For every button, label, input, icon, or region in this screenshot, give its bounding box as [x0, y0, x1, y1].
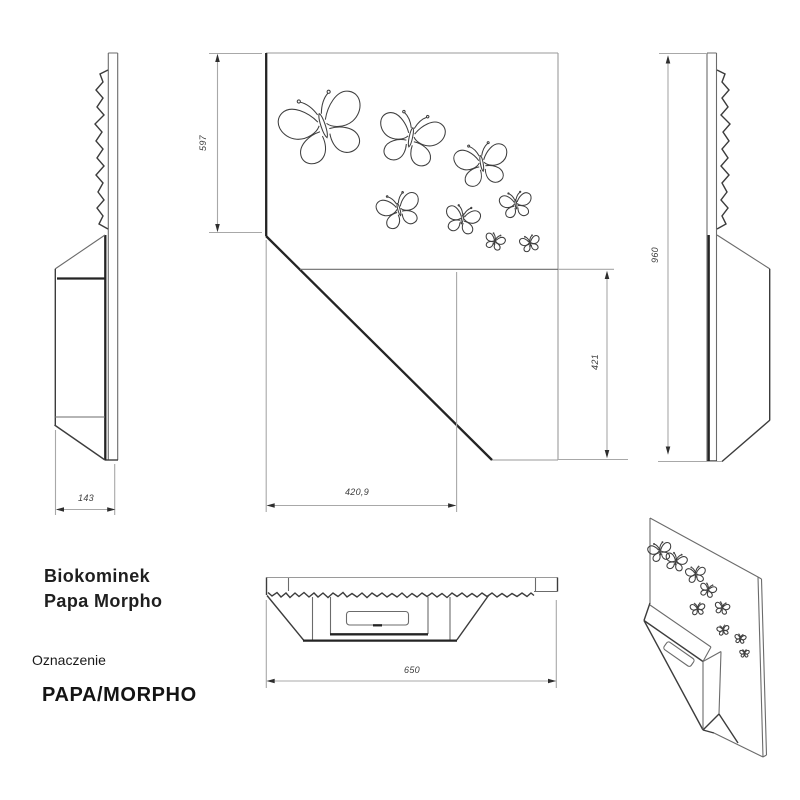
- dim-label-lower-width: 420,9: [345, 487, 369, 497]
- dim-label-overall-height: 960: [650, 247, 660, 263]
- dimension-lower-width: [266, 240, 456, 512]
- dimension-overall-height: [658, 54, 722, 462]
- perspective-view: [644, 518, 767, 757]
- designation-value: PAPA/MORPHO: [42, 684, 197, 707]
- front-view: [209, 53, 628, 512]
- technical-drawing: [0, 0, 800, 800]
- cutout-edge-profile: [717, 70, 730, 229]
- butterfly-cutouts-3d: [647, 540, 749, 657]
- dim-label-lower-height: 421: [590, 354, 600, 370]
- butterfly-cutouts: [273, 82, 541, 253]
- dim-label-overall-width: 650: [404, 665, 420, 675]
- dim-label-depth: 143: [78, 493, 94, 503]
- product-title-line2: Papa Morpho: [44, 591, 162, 612]
- dim-label-panel-height: 597: [198, 135, 208, 151]
- left-side-view: [55, 53, 119, 515]
- designation-label: Oznaczenie: [32, 652, 106, 668]
- cutout-edge-profile: [95, 70, 108, 229]
- cutout-edge-top: [268, 593, 534, 598]
- blueprint-canvas: 597 421 960 420,9 143 650 Biokominek Pap…: [0, 0, 800, 800]
- product-title-line1: Biokominek: [44, 566, 150, 587]
- burner-slot: [347, 612, 409, 626]
- right-side-view: [658, 53, 770, 462]
- dimension-panel-height: [209, 54, 262, 233]
